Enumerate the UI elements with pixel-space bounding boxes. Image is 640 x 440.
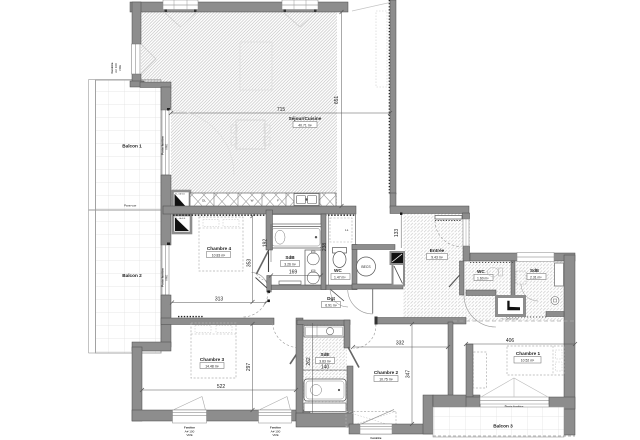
svg-text:3.83 m²: 3.83 m² <box>319 359 331 363</box>
svg-text:SdE: SdE <box>530 268 539 273</box>
svg-text:Séjour/Cuisine: Séjour/Cuisine <box>289 116 322 121</box>
svg-text:BECS: BECS <box>361 265 371 269</box>
svg-text:G - 0b 6.6: G - 0b 6.6 <box>175 194 186 196</box>
svg-text:VRE: VRE <box>118 65 122 71</box>
svg-text:SdE: SdE <box>320 352 329 357</box>
svg-text:Para-vue: Para-vue <box>124 204 137 208</box>
svg-text:W: W <box>251 199 254 203</box>
svg-text:F: F <box>277 199 279 203</box>
svg-text:262: 262 <box>306 357 312 366</box>
svg-text:WC: WC <box>334 268 342 273</box>
svg-text:Balcon 1: Balcon 1 <box>122 144 142 149</box>
svg-text:6.91 m²: 6.91 m² <box>325 303 337 307</box>
svg-text:Chambre 3: Chambre 3 <box>200 357 225 362</box>
svg-text:522: 522 <box>217 384 226 390</box>
svg-text:Entrée: Entrée <box>430 248 445 253</box>
svg-text:347: 347 <box>406 370 412 379</box>
svg-text:40.71 m²: 40.71 m² <box>298 123 312 127</box>
svg-text:Fenêtre: Fenêtre <box>370 436 381 440</box>
svg-text:140: 140 <box>321 365 330 371</box>
svg-text:1.60 m²: 1.60 m² <box>477 276 489 280</box>
svg-text:Chambre 4: Chambre 4 <box>207 246 232 251</box>
svg-text:406: 406 <box>506 338 515 344</box>
svg-text:VRE: VRE <box>165 144 169 150</box>
svg-text:1.47 m²: 1.47 m² <box>334 275 346 279</box>
svg-text:VRE: VRE <box>186 433 192 437</box>
svg-text:715: 715 <box>277 107 286 113</box>
svg-text:10.83 m²: 10.83 m² <box>212 253 226 257</box>
svg-text:2.31 m²: 2.31 m² <box>530 275 542 279</box>
svg-text:9.43 m²: 9.43 m² <box>431 255 443 259</box>
svg-text:297: 297 <box>246 363 252 372</box>
svg-text:14.48 m²: 14.48 m² <box>205 364 219 368</box>
svg-text:VRE: VRE <box>272 433 278 437</box>
svg-text:133: 133 <box>394 229 400 238</box>
svg-text:LL: LL <box>345 228 349 232</box>
svg-text:651: 651 <box>334 96 340 105</box>
svg-text:313: 313 <box>215 297 224 303</box>
svg-text:WC: WC <box>477 269 485 274</box>
svg-text:G - soffite 0.5 m2: G - soffite 0.5 m2 <box>502 318 520 321</box>
svg-text:10.75 m²: 10.75 m² <box>379 377 393 381</box>
svg-text:10.52 m²: 10.52 m² <box>521 359 535 363</box>
svg-text:3.26 m²: 3.26 m² <box>284 262 296 266</box>
svg-text:332: 332 <box>396 341 405 347</box>
svg-text:DL: DL <box>202 199 206 203</box>
svg-text:Balcon 2: Balcon 2 <box>122 273 142 278</box>
svg-text:192: 192 <box>263 239 269 248</box>
svg-text:Chambre 2: Chambre 2 <box>374 370 399 375</box>
svg-text:SdB: SdB <box>285 255 295 260</box>
svg-text:238: 238 <box>322 243 328 252</box>
svg-text:G - 0b 6.6: G - 0b 6.6 <box>176 218 187 220</box>
svg-text:Balcon 3: Balcon 3 <box>493 424 513 429</box>
svg-text:353: 353 <box>247 259 253 268</box>
svg-text:Chambre 1: Chambre 1 <box>516 351 541 356</box>
svg-text:VRE: VRE <box>165 275 169 281</box>
svg-text:169: 169 <box>289 270 298 276</box>
